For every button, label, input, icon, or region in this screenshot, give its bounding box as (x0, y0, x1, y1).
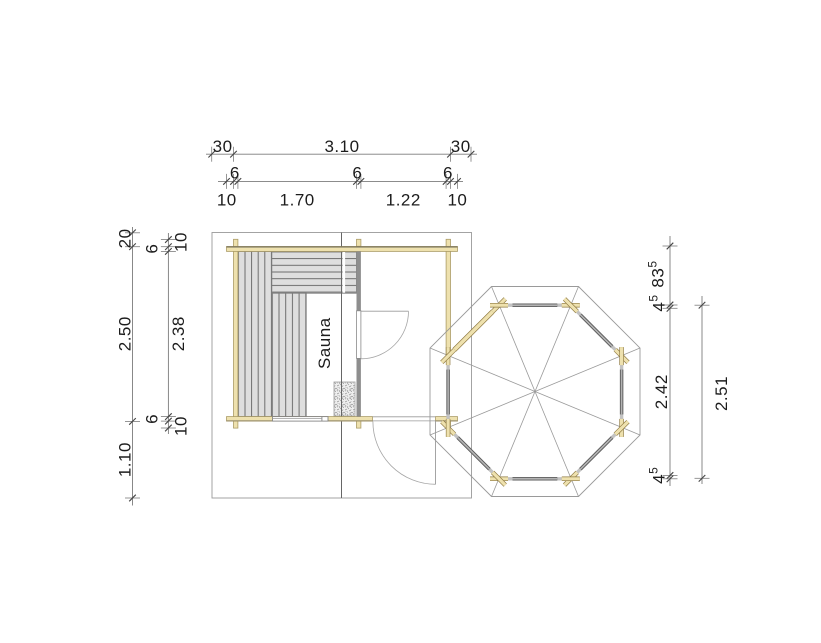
svg-text:2.50: 2.50 (116, 316, 135, 351)
svg-text:20: 20 (116, 228, 135, 248)
svg-text:Sauna: Sauna (315, 317, 334, 369)
svg-text:2.38: 2.38 (169, 316, 188, 351)
svg-text:6: 6 (143, 244, 162, 254)
svg-text:10: 10 (447, 191, 467, 210)
svg-text:3.10: 3.10 (324, 137, 359, 156)
svg-text:6: 6 (443, 163, 453, 182)
svg-text:1.10: 1.10 (116, 442, 135, 477)
svg-text:2.42: 2.42 (652, 374, 671, 409)
svg-text:10: 10 (172, 416, 191, 436)
svg-text:2.51: 2.51 (712, 376, 731, 411)
svg-text:10: 10 (217, 191, 237, 210)
svg-text:6: 6 (143, 414, 162, 424)
svg-text:6: 6 (352, 163, 362, 182)
svg-text:30: 30 (213, 137, 233, 156)
svg-text:1.22: 1.22 (386, 191, 421, 210)
svg-text:1.70: 1.70 (280, 191, 315, 210)
svg-text:10: 10 (172, 232, 191, 252)
svg-text:6: 6 (230, 163, 240, 182)
svg-text:30: 30 (451, 137, 471, 156)
